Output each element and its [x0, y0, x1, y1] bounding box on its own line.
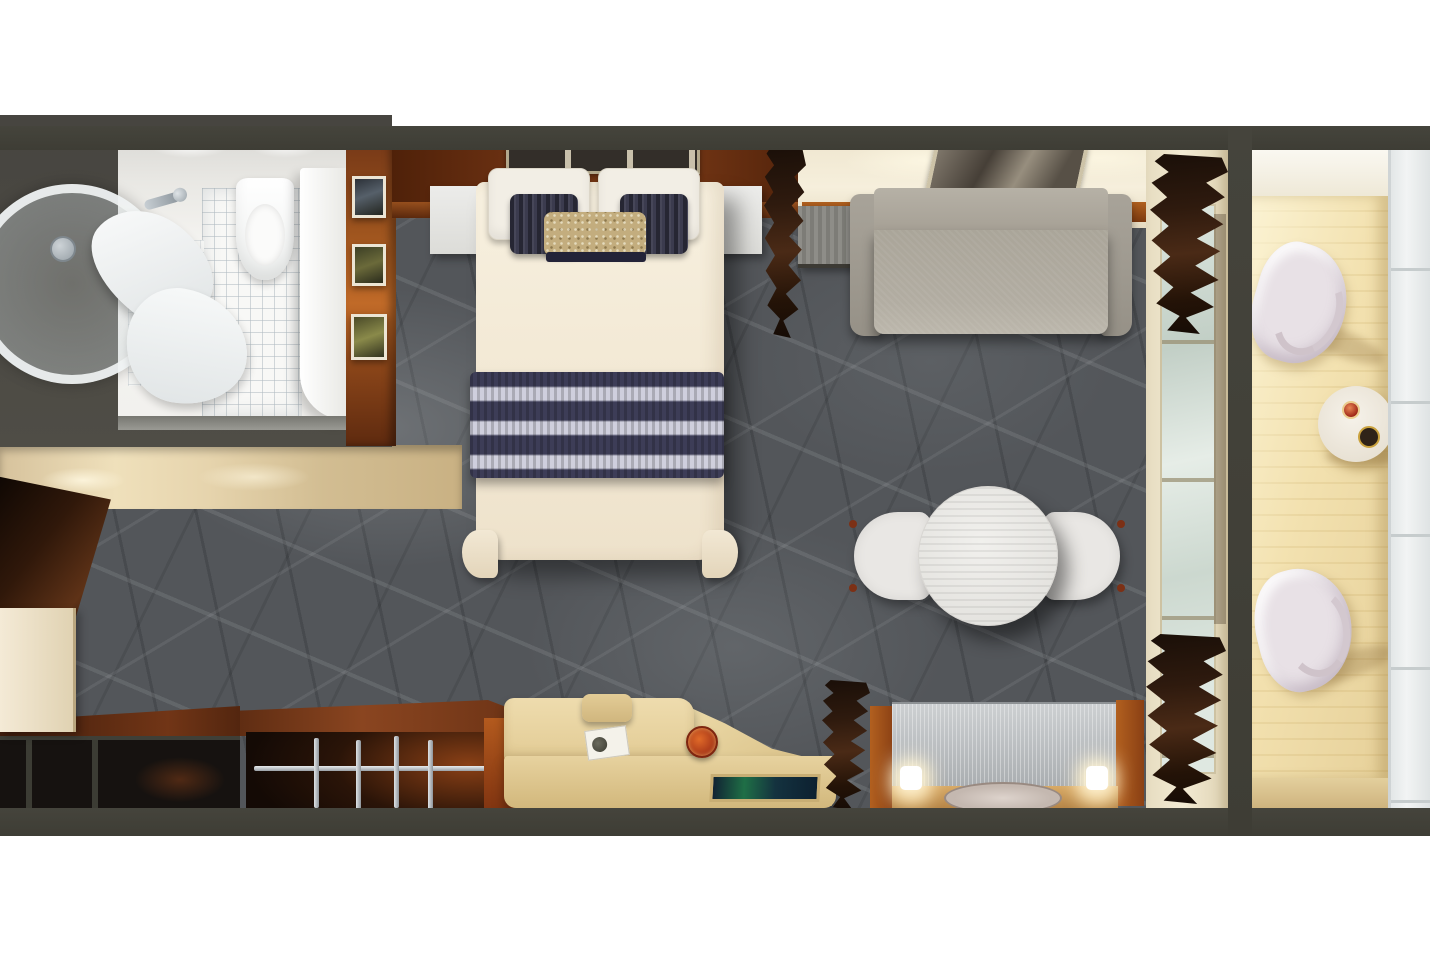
- picture-frame: [352, 244, 386, 286]
- bathroom-threshold: [118, 416, 348, 430]
- striped-bed-runner: [470, 372, 724, 478]
- table-lamp-left: [900, 766, 922, 790]
- wardrobe-chrome-post: [428, 740, 433, 810]
- sofa-seat: [874, 230, 1108, 334]
- balcony-ceiling-edge: [1252, 150, 1388, 198]
- balcony-deck-edge: [1252, 778, 1388, 810]
- picture-frame: [351, 314, 387, 360]
- console-shelves: [0, 736, 240, 812]
- floor-plan: [0, 0, 1430, 953]
- wardrobe-interior: [246, 732, 508, 814]
- vanity-wood-side-right: [1116, 700, 1144, 806]
- balcony-railing: [1388, 138, 1430, 822]
- desk-stool: [582, 694, 632, 722]
- vanity-wood-side-left: [870, 706, 894, 810]
- framed-wall-art: [925, 145, 1089, 193]
- nightstand-left: [430, 186, 478, 254]
- sink-drain: [50, 236, 76, 262]
- wardrobe-chrome-rail: [254, 766, 500, 771]
- wardrobe-chrome-post: [314, 738, 319, 808]
- sofa-backrest: [874, 188, 1108, 234]
- notebook: [584, 725, 630, 761]
- balcony-divider-wall: [1228, 126, 1252, 836]
- wardrobe-chrome-post: [356, 740, 361, 810]
- vanity-brushed-panel: [892, 702, 1118, 788]
- picture-frame: [352, 176, 386, 218]
- side-cabinet: [798, 206, 854, 268]
- bolster-shadow-band: [546, 252, 646, 262]
- round-dining-table: [918, 486, 1058, 626]
- fruit-plate: [686, 726, 718, 758]
- balcony-drinks-table: [1318, 386, 1394, 462]
- wall-pillar: [0, 608, 76, 732]
- toilet: [236, 178, 294, 280]
- inset-tv-screen: [709, 774, 820, 802]
- outer-wall-bottom: [0, 808, 1430, 836]
- gold-bolster-pillow: [544, 212, 646, 256]
- bathroom-counter: [300, 168, 346, 420]
- wardrobe-chrome-post: [394, 736, 399, 808]
- glass-reflection: [1214, 214, 1226, 624]
- outer-wall-top: [0, 126, 1430, 150]
- table-lamp-right: [1086, 766, 1108, 790]
